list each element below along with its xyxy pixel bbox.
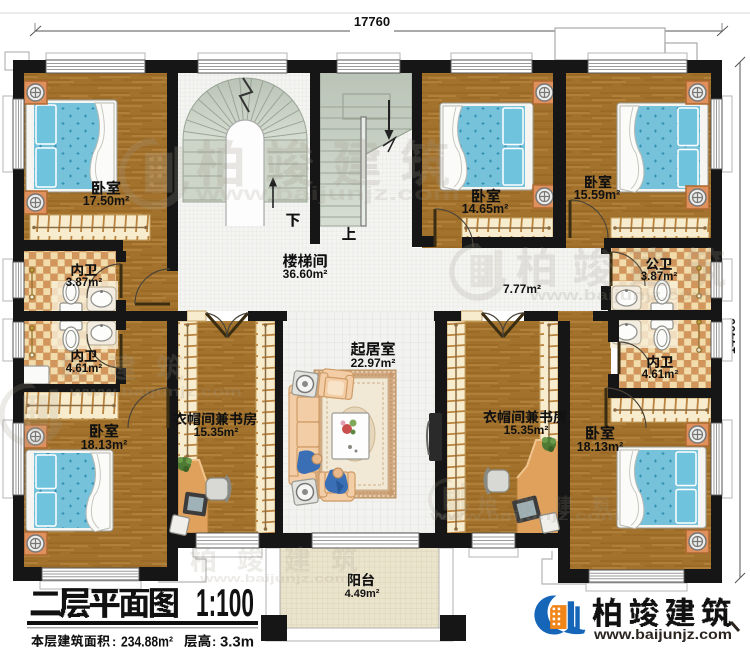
svg-text:14.65m²: 14.65m² (462, 202, 509, 216)
svg-text::: : (112, 634, 116, 649)
svg-text:234.88m²: 234.88m² (121, 635, 173, 651)
svg-text:www.baijunjz.com: www.baijunjz.com (529, 287, 710, 304)
svg-text:3.87m²: 3.87m² (641, 271, 678, 283)
svg-text:4.49m²: 4.49m² (345, 588, 380, 600)
svg-text:15.59m²: 15.59m² (574, 188, 621, 202)
svg-text:www.baijunjz.com: www.baijunjz.com (428, 508, 620, 523)
svg-text:4.61m²: 4.61m² (66, 363, 103, 375)
svg-text:15.35m²: 15.35m² (504, 423, 549, 437)
svg-text::: : (212, 634, 216, 649)
svg-text:7.77m²: 7.77m² (503, 282, 541, 296)
svg-text:15.35m²: 15.35m² (194, 425, 239, 439)
svg-text:www.baijunjz.com: www.baijunjz.com (68, 385, 242, 399)
svg-text:4.61m²: 4.61m² (642, 369, 679, 381)
svg-text:www.baijunjz.com: www.baijunjz.com (194, 184, 460, 205)
svg-text:www.baijunjz.com: www.baijunjz.com (593, 627, 732, 642)
svg-text:17.50m²: 17.50m² (83, 194, 130, 208)
svg-text:18.13m²: 18.13m² (577, 440, 624, 454)
svg-text:18.13m²: 18.13m² (81, 438, 128, 452)
svg-text:36.60m²: 36.60m² (283, 267, 328, 281)
svg-text:1:100: 1:100 (196, 582, 254, 625)
svg-text:3.87m²: 3.87m² (66, 277, 103, 289)
svg-text:3.3m: 3.3m (220, 635, 254, 651)
svg-text:17760: 17760 (354, 14, 390, 29)
svg-text:22.97m²: 22.97m² (351, 356, 396, 370)
